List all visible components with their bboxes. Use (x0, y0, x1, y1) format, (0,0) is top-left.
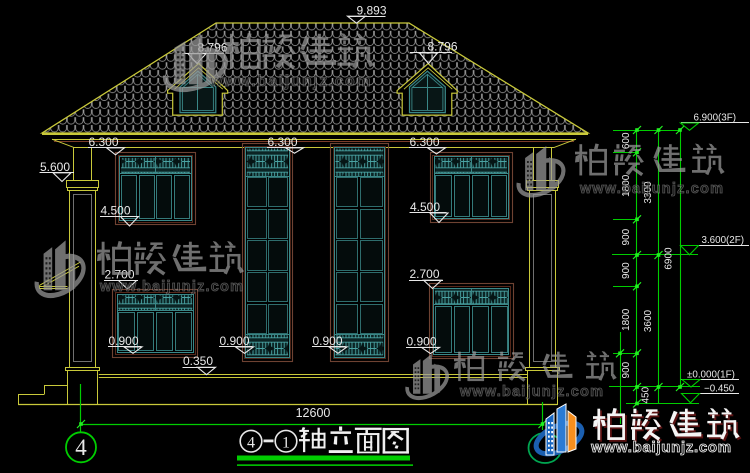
svg-text:0.900: 0.900 (407, 335, 437, 349)
svg-text:6.300: 6.300 (89, 135, 119, 149)
svg-text:900: 900 (621, 361, 632, 378)
svg-text:900: 900 (621, 228, 632, 245)
svg-text:1: 1 (282, 435, 290, 452)
svg-text:6.300: 6.300 (410, 135, 440, 149)
svg-text:900: 900 (621, 262, 632, 279)
svg-text:www.baijunjz.com: www.baijunjz.com (590, 439, 732, 456)
svg-text:0.900: 0.900 (220, 334, 250, 348)
svg-text:12600: 12600 (296, 406, 331, 420)
svg-text:4.500: 4.500 (101, 204, 131, 218)
svg-text:6.300: 6.300 (268, 135, 298, 149)
svg-text:9.893: 9.893 (357, 4, 387, 18)
svg-text:0.900: 0.900 (313, 334, 343, 348)
svg-text:3600: 3600 (643, 309, 654, 332)
svg-text:5.600: 5.600 (40, 160, 70, 174)
svg-text:www.baijunjz.com: www.baijunjz.com (579, 181, 724, 197)
svg-text:−0.450: −0.450 (704, 384, 735, 395)
svg-text:4: 4 (75, 435, 87, 460)
svg-text:4: 4 (247, 435, 255, 452)
svg-text:0.350: 0.350 (183, 354, 213, 368)
svg-text:450: 450 (641, 386, 652, 403)
svg-text:www.baijunjz.com: www.baijunjz.com (459, 384, 604, 400)
svg-text:2.700: 2.700 (410, 267, 440, 281)
svg-text:8.796: 8.796 (428, 40, 458, 54)
svg-text:6.900(3F): 6.900(3F) (694, 113, 736, 124)
svg-text:www.baijunjz.com: www.baijunjz.com (209, 73, 372, 90)
svg-text:6900: 6900 (664, 247, 675, 270)
svg-text:0.900: 0.900 (109, 334, 139, 348)
svg-text:4.500: 4.500 (410, 200, 440, 214)
svg-text:www.baijunjz.com: www.baijunjz.com (99, 279, 244, 295)
svg-text:1800: 1800 (621, 308, 632, 331)
svg-text:3.600(2F): 3.600(2F) (702, 235, 744, 246)
svg-text:±0.000(1F): ±0.000(1F) (687, 369, 735, 380)
